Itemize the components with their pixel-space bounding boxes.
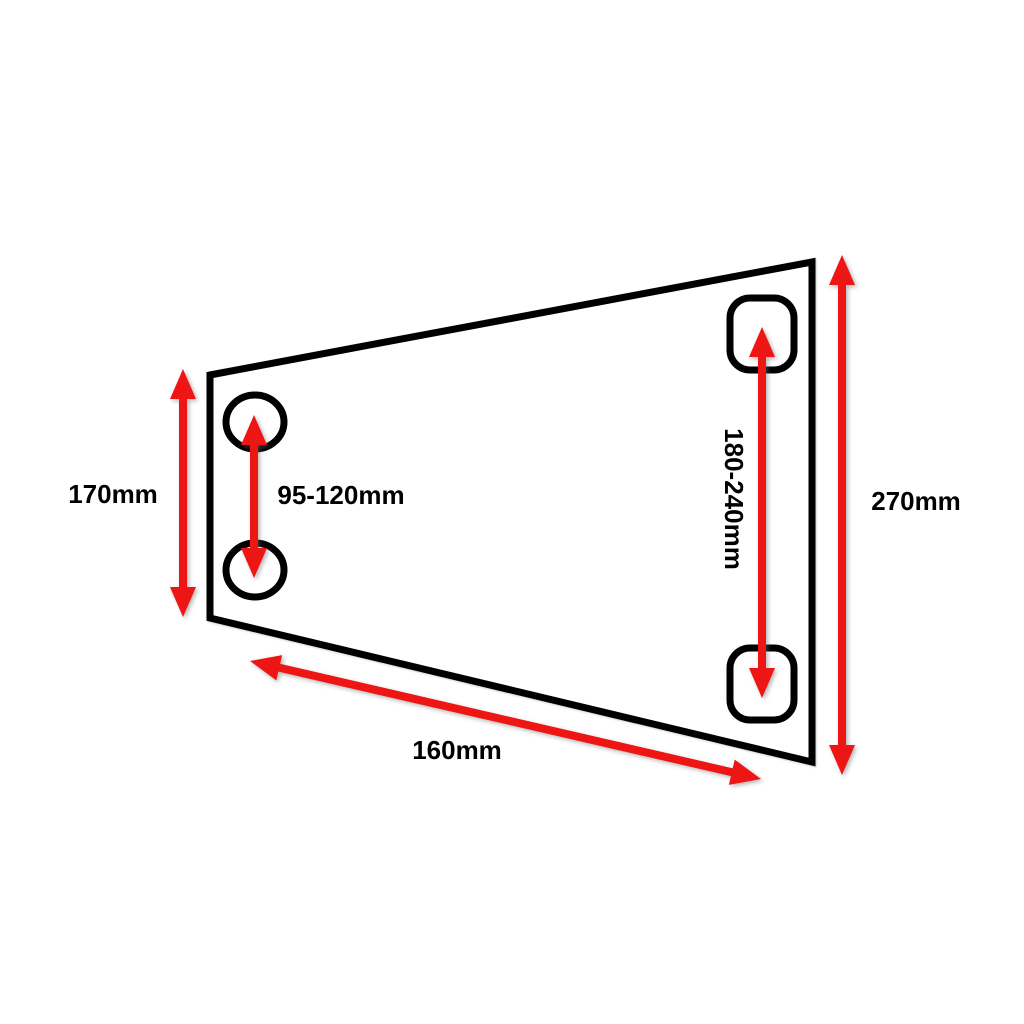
arrow-head-right-icon: [729, 760, 761, 785]
arrow-head-up-icon: [829, 255, 855, 285]
arrow-head-down-icon: [829, 745, 855, 775]
label-left-height: 170mm: [68, 479, 158, 509]
arrow-head-left-icon: [250, 655, 282, 680]
dimension-arrow-right-height: [829, 255, 855, 775]
label-left-hole-spacing: 95-120mm: [277, 480, 404, 510]
dimension-arrow-left-height: [170, 369, 196, 617]
arrow-head-down-icon: [170, 587, 196, 617]
label-bottom-width: 160mm: [412, 735, 502, 765]
label-right-height: 270mm: [871, 486, 961, 516]
label-right-hole-spacing: 180-240mm: [719, 428, 749, 570]
diagram-canvas: 170mm 95-120mm 180-240mm 270mm 160mm: [0, 0, 1024, 1024]
dimension-diagram: 170mm 95-120mm 180-240mm 270mm 160mm: [0, 0, 1024, 1024]
arrow-head-up-icon: [170, 369, 196, 399]
